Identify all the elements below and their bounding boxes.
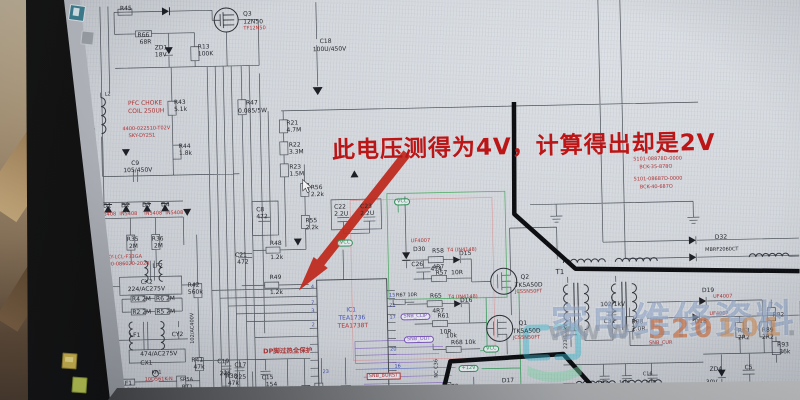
schematic-label: 474/AC275V (140, 351, 177, 358)
schematic-label: R68 10k (451, 340, 476, 347)
schematic-label: 472 (256, 214, 268, 221)
schematic-label: R67 10R (396, 293, 417, 299)
schematic-label: IN5408 IN5408 (144, 211, 183, 217)
schematic-label: R58 (432, 249, 444, 256)
schematic-label: R49 (270, 275, 282, 282)
schematic-label: R5 2M (156, 309, 175, 316)
schematic-label: UF4007 (411, 239, 430, 245)
schematic-label: C18 (320, 39, 332, 46)
schematic-label: D4 (161, 202, 170, 208)
schematic-label: 560k (188, 290, 203, 297)
schematic-label: C5 (745, 365, 753, 371)
schematic-label: 100U/450V (313, 47, 347, 54)
schematic-label: 4400-022510-T02V (122, 126, 170, 132)
schematic-label: 23 (323, 370, 329, 375)
desktop-icon-1[interactable] (68, 4, 86, 22)
schematic-label: 47k (228, 381, 239, 388)
schematic-label: R48 (270, 241, 282, 248)
bezel-sticker-1 (61, 352, 77, 369)
watermark-url-suffix: .com (786, 310, 800, 342)
schematic-label: 105/450V (123, 168, 152, 175)
schematic-label: 225 (220, 371, 232, 378)
schematic-label: 2M (154, 243, 163, 249)
schematic-label: 1.2k (270, 255, 283, 262)
mosfet-symbols (145, 2, 519, 377)
schematic-label: D32 (715, 235, 727, 242)
schematic-label: MBRF2060CT (705, 247, 738, 253)
schematic-label: 0.085/5W (238, 108, 267, 115)
schematic-label: SNB_OUT (404, 336, 434, 344)
schematic-label: T1 (555, 269, 564, 277)
schematic-label: VCC (483, 345, 500, 353)
schematic-label: 16 (394, 364, 400, 369)
schematic-label: LF1 (130, 333, 141, 340)
schematic-label: R65 (430, 294, 442, 301)
schematic-label: R57 10R (435, 270, 463, 277)
schematic-label: 1.5M (289, 171, 304, 178)
schematic-label: 1.2k (270, 290, 283, 297)
watermark-url-520: 520 (648, 314, 718, 345)
schematic-label: 7 (311, 301, 314, 306)
schematic-label: 18V (155, 52, 167, 59)
schematic-label: D1 (103, 203, 112, 209)
schematic-label: SNB_BURST (367, 372, 401, 380)
schematic-label: C16 (643, 372, 653, 377)
schematic-label: R45 (120, 6, 132, 13)
schematic-label: 2.2k (306, 225, 319, 232)
schematic-label: Q1 (519, 321, 528, 327)
schematic-label: 3 (311, 309, 314, 314)
schematic-label: C26 (411, 262, 423, 269)
schematic-label: Q3 (243, 11, 252, 17)
watermark-url-101: 101 (717, 312, 787, 343)
bezel-sticker-2 (71, 376, 87, 393)
schematic-label: R2 2M (132, 310, 151, 317)
schematic-label: 100K (198, 51, 214, 58)
schematic-label: VCC (394, 198, 411, 206)
schematic-label: L2 (105, 92, 111, 97)
photo-of-monitor: R45Q312N50TF12N50R6668RZD118VR13100KC181… (0, 0, 800, 400)
schematic-label: DP脚过热全保护 (263, 347, 312, 355)
schematic-label: 15 (389, 294, 395, 299)
schematic-label: R4 2M (132, 297, 151, 304)
schematic-label: COIL 250UH (128, 108, 164, 115)
schematic-label: TF12N50 (243, 26, 266, 32)
schematic-label: C19 (217, 359, 229, 366)
schematic-label: CY2 (172, 332, 184, 339)
watermark-url: www.520101.com (547, 310, 800, 347)
schematic-label: D2 (121, 203, 130, 209)
schematic-label: 1.8k (179, 151, 192, 158)
schematic-label: IC1 (346, 307, 356, 314)
schematic-label: D30 (413, 247, 425, 254)
schematic-label: BCK-35-878O (639, 165, 672, 171)
schematic-label: R47 (246, 100, 258, 107)
schematic-label: 224/AC275V (128, 286, 165, 293)
monitor-screen: R45Q312N50TF12N50R6668RZD118VR13100KC181… (0, 0, 800, 400)
schematic-label: 225 (235, 375, 247, 382)
schematic-label: R61 (437, 313, 449, 320)
schematic-label: CX1 (140, 361, 152, 368)
schematic-label: TEA1736 (338, 315, 365, 322)
schematic-label: 68R (140, 40, 152, 47)
schematic-label: 21 (389, 304, 395, 309)
schematic-label: +12V (458, 365, 478, 373)
schematic-sheet: R45Q312N50TF12N50R6668RZD118VR13100KC181… (0, 0, 800, 400)
desktop-icon-2[interactable] (80, 30, 94, 45)
schematic-label: 17 (389, 316, 395, 321)
schematic-label: 3.3M (289, 149, 304, 156)
schematic-label: C17 (234, 363, 246, 370)
schematic-label: SNB_CLIP (400, 313, 430, 321)
schematic-label: NC C36 (434, 359, 440, 378)
schematic-label: TEA1738T (338, 323, 369, 330)
schematic-label: 2M (129, 244, 138, 250)
schematic-label: D15 (459, 251, 471, 258)
schematic-label: 10D561K-N (145, 377, 173, 383)
schematic-label: PFC CHOKE (128, 100, 162, 107)
schematic-label: 36k (779, 349, 790, 356)
schematic-label: 472 (237, 260, 249, 267)
schematic-label: 4.7M (286, 127, 301, 134)
schematic-label: 2.2U (334, 212, 348, 219)
schematic-label: 20 (390, 348, 396, 353)
schematic-label: 5.1k (174, 107, 187, 114)
schematic-label: SKY-DY2S1 (129, 134, 156, 140)
schematic-label: Q2 (521, 275, 530, 281)
schematic-label: LF2 (152, 263, 163, 270)
schematic-label: R6 2M (156, 296, 175, 303)
schematic-label: KR1 (152, 370, 162, 375)
schematic-label: JCS5N50FT (515, 289, 542, 295)
schematic-label: D16 (460, 298, 472, 305)
schematic-label: VCC (337, 239, 354, 247)
schematic-label: 2.2k (311, 192, 324, 199)
watermark-url-prefix: www. (547, 315, 648, 347)
schematic-label: 2 (312, 323, 315, 328)
schematic-label: JCS5N50FT (513, 336, 540, 342)
schematic-label: BCK-40-687O (640, 185, 673, 191)
schematic-label: SR5A (180, 378, 193, 384)
schematic-label: 47k (193, 365, 204, 372)
schematic-label: ZD4 (710, 367, 723, 374)
schematic-label: 102/AC400V (190, 313, 196, 344)
schematic-label: 2.2U (360, 211, 374, 218)
schematic-label: 4 (311, 285, 314, 290)
schematic-label: D3 (142, 203, 151, 209)
schematic-label: 5101-08687D-0000 (634, 176, 683, 182)
